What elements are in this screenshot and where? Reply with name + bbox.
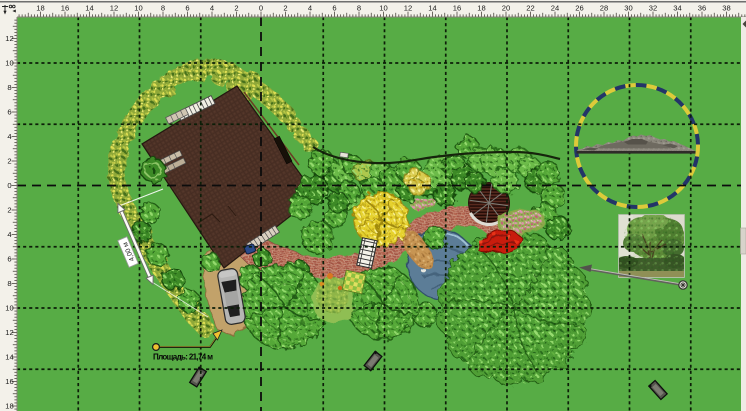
svg-text:12: 12 bbox=[110, 4, 118, 13]
svg-text:38: 38 bbox=[722, 4, 730, 13]
svg-text:2: 2 bbox=[7, 206, 11, 215]
svg-text:0: 0 bbox=[259, 4, 263, 13]
svg-text:16: 16 bbox=[5, 377, 13, 386]
svg-text:24: 24 bbox=[551, 4, 559, 13]
svg-text:14: 14 bbox=[5, 353, 13, 362]
svg-text:10: 10 bbox=[379, 4, 387, 13]
svg-text:10: 10 bbox=[5, 59, 13, 68]
svg-text:26: 26 bbox=[575, 4, 583, 13]
svg-text:14: 14 bbox=[85, 4, 93, 13]
svg-text:8: 8 bbox=[7, 83, 11, 92]
svg-text:28: 28 bbox=[600, 4, 608, 13]
svg-text:6: 6 bbox=[332, 4, 336, 13]
svg-text:36: 36 bbox=[698, 4, 706, 13]
svg-text:Площадь: 21,74 м: Площадь: 21,74 м bbox=[153, 353, 213, 362]
svg-text:10: 10 bbox=[5, 304, 13, 313]
svg-text:0: 0 bbox=[7, 181, 11, 190]
svg-text:22: 22 bbox=[526, 4, 534, 13]
svg-text:2: 2 bbox=[283, 4, 287, 13]
svg-text:6: 6 bbox=[7, 108, 11, 117]
svg-text:8: 8 bbox=[7, 279, 11, 288]
svg-text:4: 4 bbox=[210, 4, 214, 13]
svg-text:12: 12 bbox=[5, 34, 13, 43]
svg-text:12: 12 bbox=[404, 4, 412, 13]
svg-text:8: 8 bbox=[357, 4, 361, 13]
svg-text:8: 8 bbox=[161, 4, 165, 13]
svg-text:12: 12 bbox=[5, 328, 13, 337]
svg-text:18: 18 bbox=[477, 4, 485, 13]
svg-text:6: 6 bbox=[7, 255, 11, 264]
svg-text:4: 4 bbox=[308, 4, 312, 13]
svg-text:16: 16 bbox=[453, 4, 461, 13]
svg-text:20: 20 bbox=[502, 4, 510, 13]
svg-text:16: 16 bbox=[61, 4, 69, 13]
svg-text:14: 14 bbox=[428, 4, 436, 13]
svg-text:32: 32 bbox=[649, 4, 657, 13]
svg-text:18: 18 bbox=[5, 402, 13, 411]
svg-text:30: 30 bbox=[624, 4, 632, 13]
svg-text:34: 34 bbox=[673, 4, 681, 13]
svg-text:18: 18 bbox=[36, 4, 44, 13]
svg-text:10: 10 bbox=[134, 4, 142, 13]
svg-text:6: 6 bbox=[185, 4, 189, 13]
svg-text:2: 2 bbox=[234, 4, 238, 13]
svg-text:4: 4 bbox=[7, 132, 11, 141]
svg-text:4: 4 bbox=[7, 230, 11, 239]
svg-text:2: 2 bbox=[7, 157, 11, 166]
